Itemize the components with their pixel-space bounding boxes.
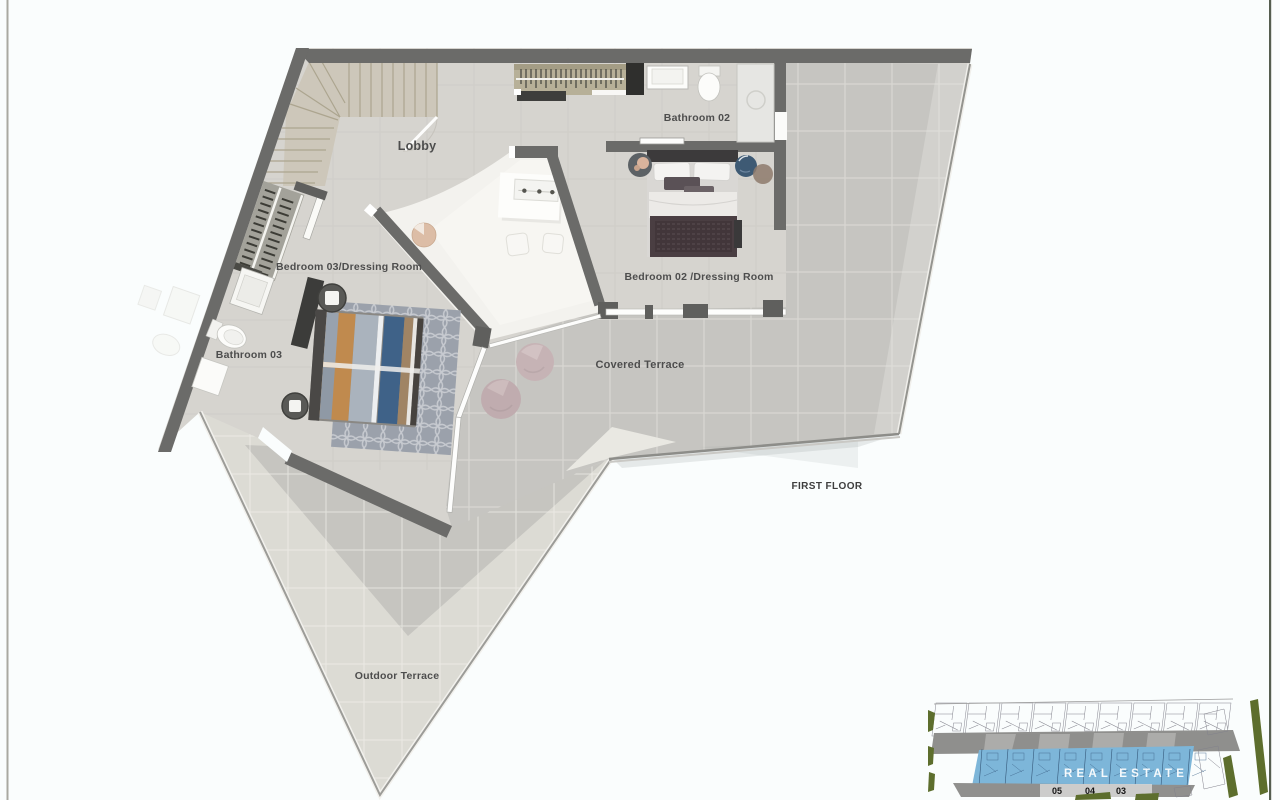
- svg-text:Lobby: Lobby: [398, 139, 437, 153]
- svg-text:Bedroom 03/Dressing Room: Bedroom 03/Dressing Room: [276, 261, 422, 273]
- svg-text:Outdoor Terrace: Outdoor Terrace: [355, 670, 440, 682]
- svg-text:Covered Terrace: Covered Terrace: [595, 359, 684, 371]
- svg-text:FIRST FLOOR: FIRST FLOOR: [791, 481, 862, 492]
- svg-text:REAL ESTATE: REAL ESTATE: [1064, 768, 1188, 780]
- svg-text:05: 05: [1052, 786, 1062, 796]
- svg-text:Bedroom 02 /Dressing Room: Bedroom 02 /Dressing Room: [624, 271, 773, 283]
- svg-text:03: 03: [1116, 786, 1126, 796]
- svg-text:Bathroom 02: Bathroom 02: [664, 112, 730, 124]
- svg-text:Bathroom 03: Bathroom 03: [216, 349, 282, 361]
